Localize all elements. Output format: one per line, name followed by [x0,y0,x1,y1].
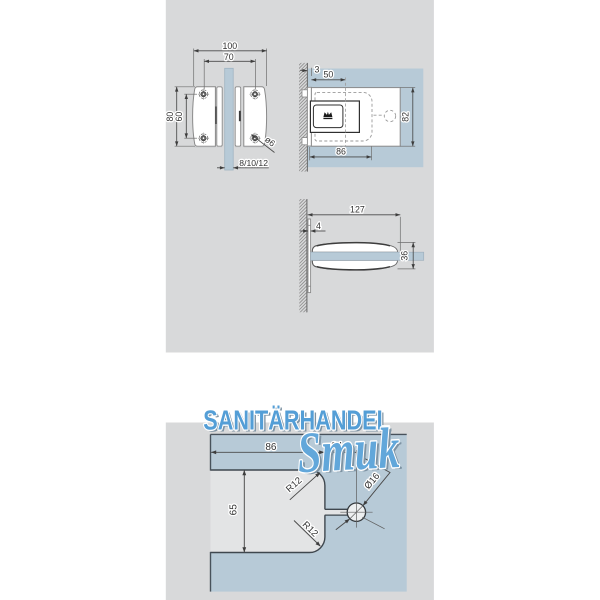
svg-text:3: 3 [314,65,319,75]
svg-text:86: 86 [265,442,277,453]
svg-text:82: 82 [401,112,411,122]
svg-text:65: 65 [229,504,240,516]
svg-text:86: 86 [336,147,346,157]
svg-text:36: 36 [400,251,410,261]
svg-text:70: 70 [224,52,234,62]
svg-text:4: 4 [316,221,321,231]
svg-text:127: 127 [350,205,365,215]
svg-text:60: 60 [174,112,184,122]
svg-text:50: 50 [324,70,334,80]
svg-text:100: 100 [222,41,237,51]
svg-text:Smuk: Smuk [296,415,401,485]
svg-text:8/10/12: 8/10/12 [239,158,268,168]
